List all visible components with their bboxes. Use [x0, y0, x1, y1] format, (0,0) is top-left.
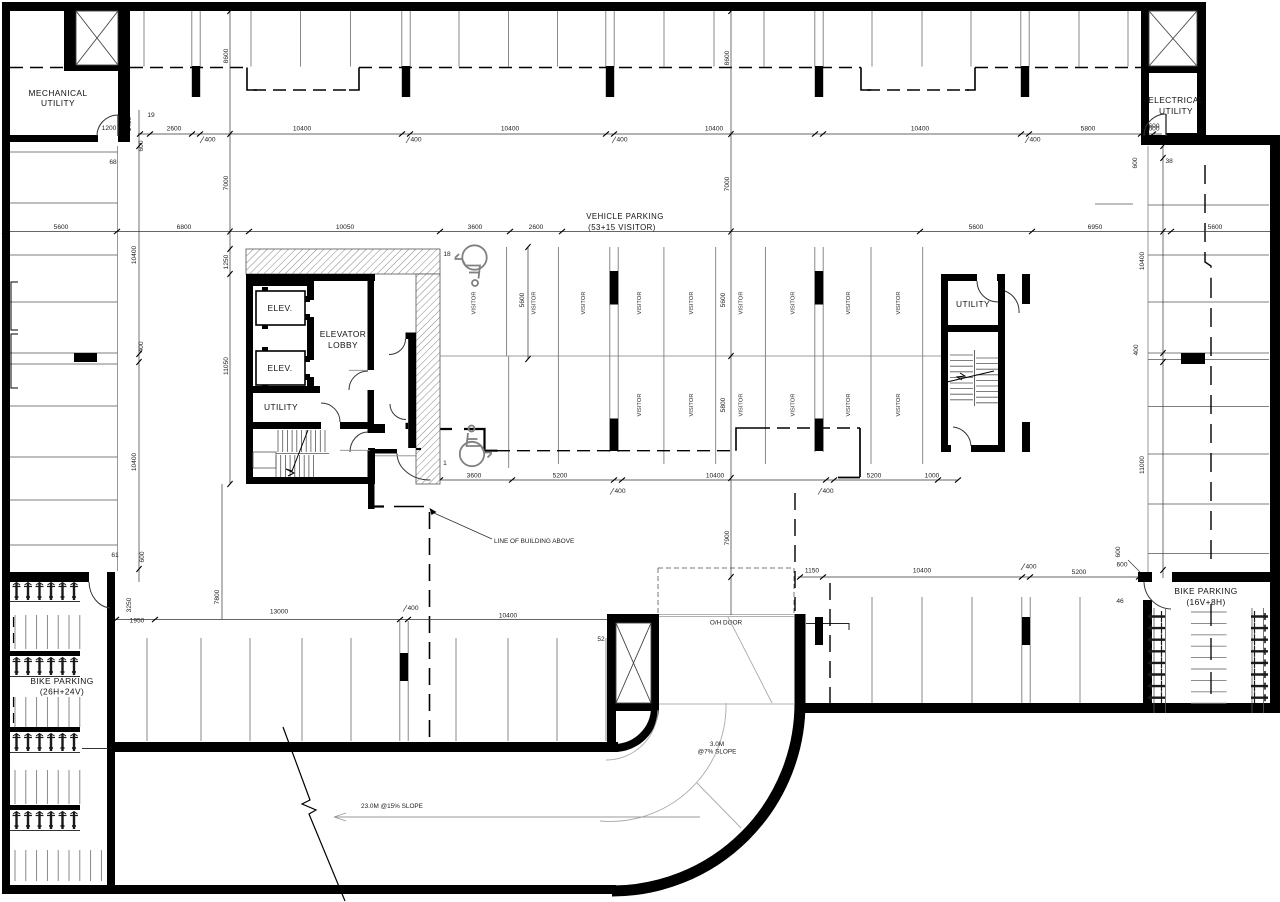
svg-text:46: 46	[1116, 598, 1124, 605]
svg-text:6800: 6800	[177, 224, 192, 231]
svg-text:400: 400	[138, 341, 145, 352]
svg-text:61: 61	[111, 552, 119, 559]
svg-text:400: 400	[204, 137, 215, 144]
svg-text:5200: 5200	[867, 473, 882, 480]
svg-text:7900: 7900	[724, 530, 731, 545]
svg-text:5200: 5200	[1072, 569, 1087, 576]
svg-text:VISITOR: VISITOR	[637, 393, 643, 416]
svg-text:VISITOR: VISITOR	[896, 393, 902, 416]
svg-text:1250: 1250	[223, 254, 230, 269]
svg-text:VISITOR: VISITOR	[581, 291, 587, 314]
svg-text:38: 38	[1166, 158, 1174, 165]
svg-text:5600: 5600	[519, 292, 526, 307]
svg-text:3250: 3250	[126, 597, 133, 612]
svg-text:UTILITY: UTILITY	[956, 299, 990, 309]
svg-text:(53+15 VISITOR): (53+15 VISITOR)	[588, 223, 656, 232]
svg-text:VISITOR: VISITOR	[846, 291, 852, 314]
svg-text:1: 1	[443, 460, 447, 467]
svg-text:10400: 10400	[501, 126, 520, 133]
svg-text:3600: 3600	[468, 224, 483, 231]
svg-text:VEHICLE PARKING: VEHICLE PARKING	[586, 212, 664, 221]
svg-text:400: 400	[410, 137, 421, 144]
svg-text:10400: 10400	[131, 453, 138, 472]
svg-text:UTILITY: UTILITY	[41, 98, 75, 108]
svg-text:23.0M @15% SLOPE: 23.0M @15% SLOPE	[361, 803, 423, 810]
svg-text:11050: 11050	[223, 357, 230, 375]
svg-text:400: 400	[1133, 344, 1140, 355]
svg-text:@7% SLOPE: @7% SLOPE	[698, 749, 737, 756]
svg-text:600: 600	[1116, 562, 1127, 569]
svg-text:400: 400	[822, 488, 833, 495]
svg-text:3.0M: 3.0M	[710, 741, 724, 748]
svg-text:10400: 10400	[913, 568, 932, 575]
svg-text:400: 400	[1029, 137, 1040, 144]
svg-text:10050: 10050	[336, 224, 355, 231]
svg-text:5600: 5600	[969, 224, 984, 231]
svg-text:68: 68	[109, 159, 117, 166]
svg-text:3600: 3600	[467, 473, 482, 480]
svg-text:5600: 5600	[54, 224, 69, 231]
svg-text:10400: 10400	[131, 246, 138, 265]
svg-text:(16V+8H): (16V+8H)	[1186, 597, 1225, 607]
svg-text:VISITOR: VISITOR	[790, 291, 796, 314]
svg-text:10400: 10400	[706, 473, 725, 480]
svg-text:5600: 5600	[1208, 224, 1223, 231]
svg-text:10400: 10400	[911, 126, 930, 133]
svg-text:VISITOR: VISITOR	[532, 291, 538, 314]
svg-text:VISITOR: VISITOR	[896, 291, 902, 314]
svg-text:13000: 13000	[270, 609, 289, 616]
svg-text:600: 600	[139, 551, 146, 562]
svg-text:(26H+24V): (26H+24V)	[40, 687, 84, 697]
svg-text:8600: 8600	[724, 50, 731, 65]
svg-text:2600: 2600	[167, 126, 182, 133]
svg-text:VISITOR: VISITOR	[689, 291, 695, 314]
svg-text:ELEV.: ELEV.	[268, 303, 293, 313]
svg-text:VISITOR: VISITOR	[790, 393, 796, 416]
svg-text:ELEV.: ELEV.	[268, 363, 293, 373]
svg-text:5800: 5800	[1081, 126, 1096, 133]
svg-text:O/H DOOR: O/H DOOR	[710, 620, 743, 627]
svg-text:ELEVATOR: ELEVATOR	[320, 329, 366, 339]
svg-text:VISITOR: VISITOR	[637, 291, 643, 314]
svg-text:600: 600	[1115, 546, 1122, 557]
svg-text:UTILITY: UTILITY	[1159, 106, 1193, 116]
svg-text:7000: 7000	[223, 175, 230, 190]
svg-text:VISITOR: VISITOR	[846, 393, 852, 416]
svg-text:UTILITY: UTILITY	[264, 402, 298, 412]
svg-text:600: 600	[1132, 157, 1139, 168]
svg-text:10400: 10400	[499, 613, 518, 620]
svg-text:2600: 2600	[529, 224, 544, 231]
svg-text:MECHANICAL: MECHANICAL	[29, 88, 88, 98]
svg-text:LINE OF BUILDING ABOVE: LINE OF BUILDING ABOVE	[494, 538, 574, 545]
svg-text:1000: 1000	[925, 473, 940, 480]
svg-text:400: 400	[616, 137, 627, 144]
svg-text:600: 600	[1148, 123, 1159, 130]
svg-text:400: 400	[1025, 564, 1036, 571]
svg-text:1200: 1200	[102, 125, 117, 132]
svg-text:LOBBY: LOBBY	[328, 340, 358, 350]
svg-text:19: 19	[147, 112, 155, 119]
svg-text:1950: 1950	[130, 618, 145, 625]
svg-text:BIKE PARKING: BIKE PARKING	[1174, 586, 1237, 596]
svg-text:5800: 5800	[720, 397, 727, 412]
svg-text:8600: 8600	[223, 48, 230, 63]
svg-text:VISITOR: VISITOR	[739, 393, 745, 416]
svg-text:10400: 10400	[705, 126, 724, 133]
svg-text:52: 52	[597, 636, 605, 643]
svg-text:400: 400	[407, 605, 418, 612]
svg-text:10400: 10400	[293, 126, 312, 133]
svg-text:VISITOR: VISITOR	[472, 291, 478, 314]
svg-text:7800: 7800	[214, 589, 221, 604]
svg-text:ELECTRICAL: ELECTRICAL	[1148, 95, 1204, 105]
svg-text:18: 18	[443, 251, 451, 258]
svg-text:5600: 5600	[720, 292, 727, 307]
svg-text:6950: 6950	[1088, 224, 1103, 231]
svg-text:400: 400	[614, 488, 625, 495]
svg-text:BIKE PARKING: BIKE PARKING	[30, 676, 93, 686]
svg-text:1150: 1150	[805, 568, 820, 575]
svg-text:11000: 11000	[1139, 456, 1146, 474]
svg-text:7000: 7000	[724, 176, 731, 191]
svg-text:VISITOR: VISITOR	[739, 291, 745, 314]
svg-text:10400: 10400	[1139, 252, 1146, 271]
svg-text:5200: 5200	[553, 473, 568, 480]
svg-text:VISITOR: VISITOR	[689, 393, 695, 416]
